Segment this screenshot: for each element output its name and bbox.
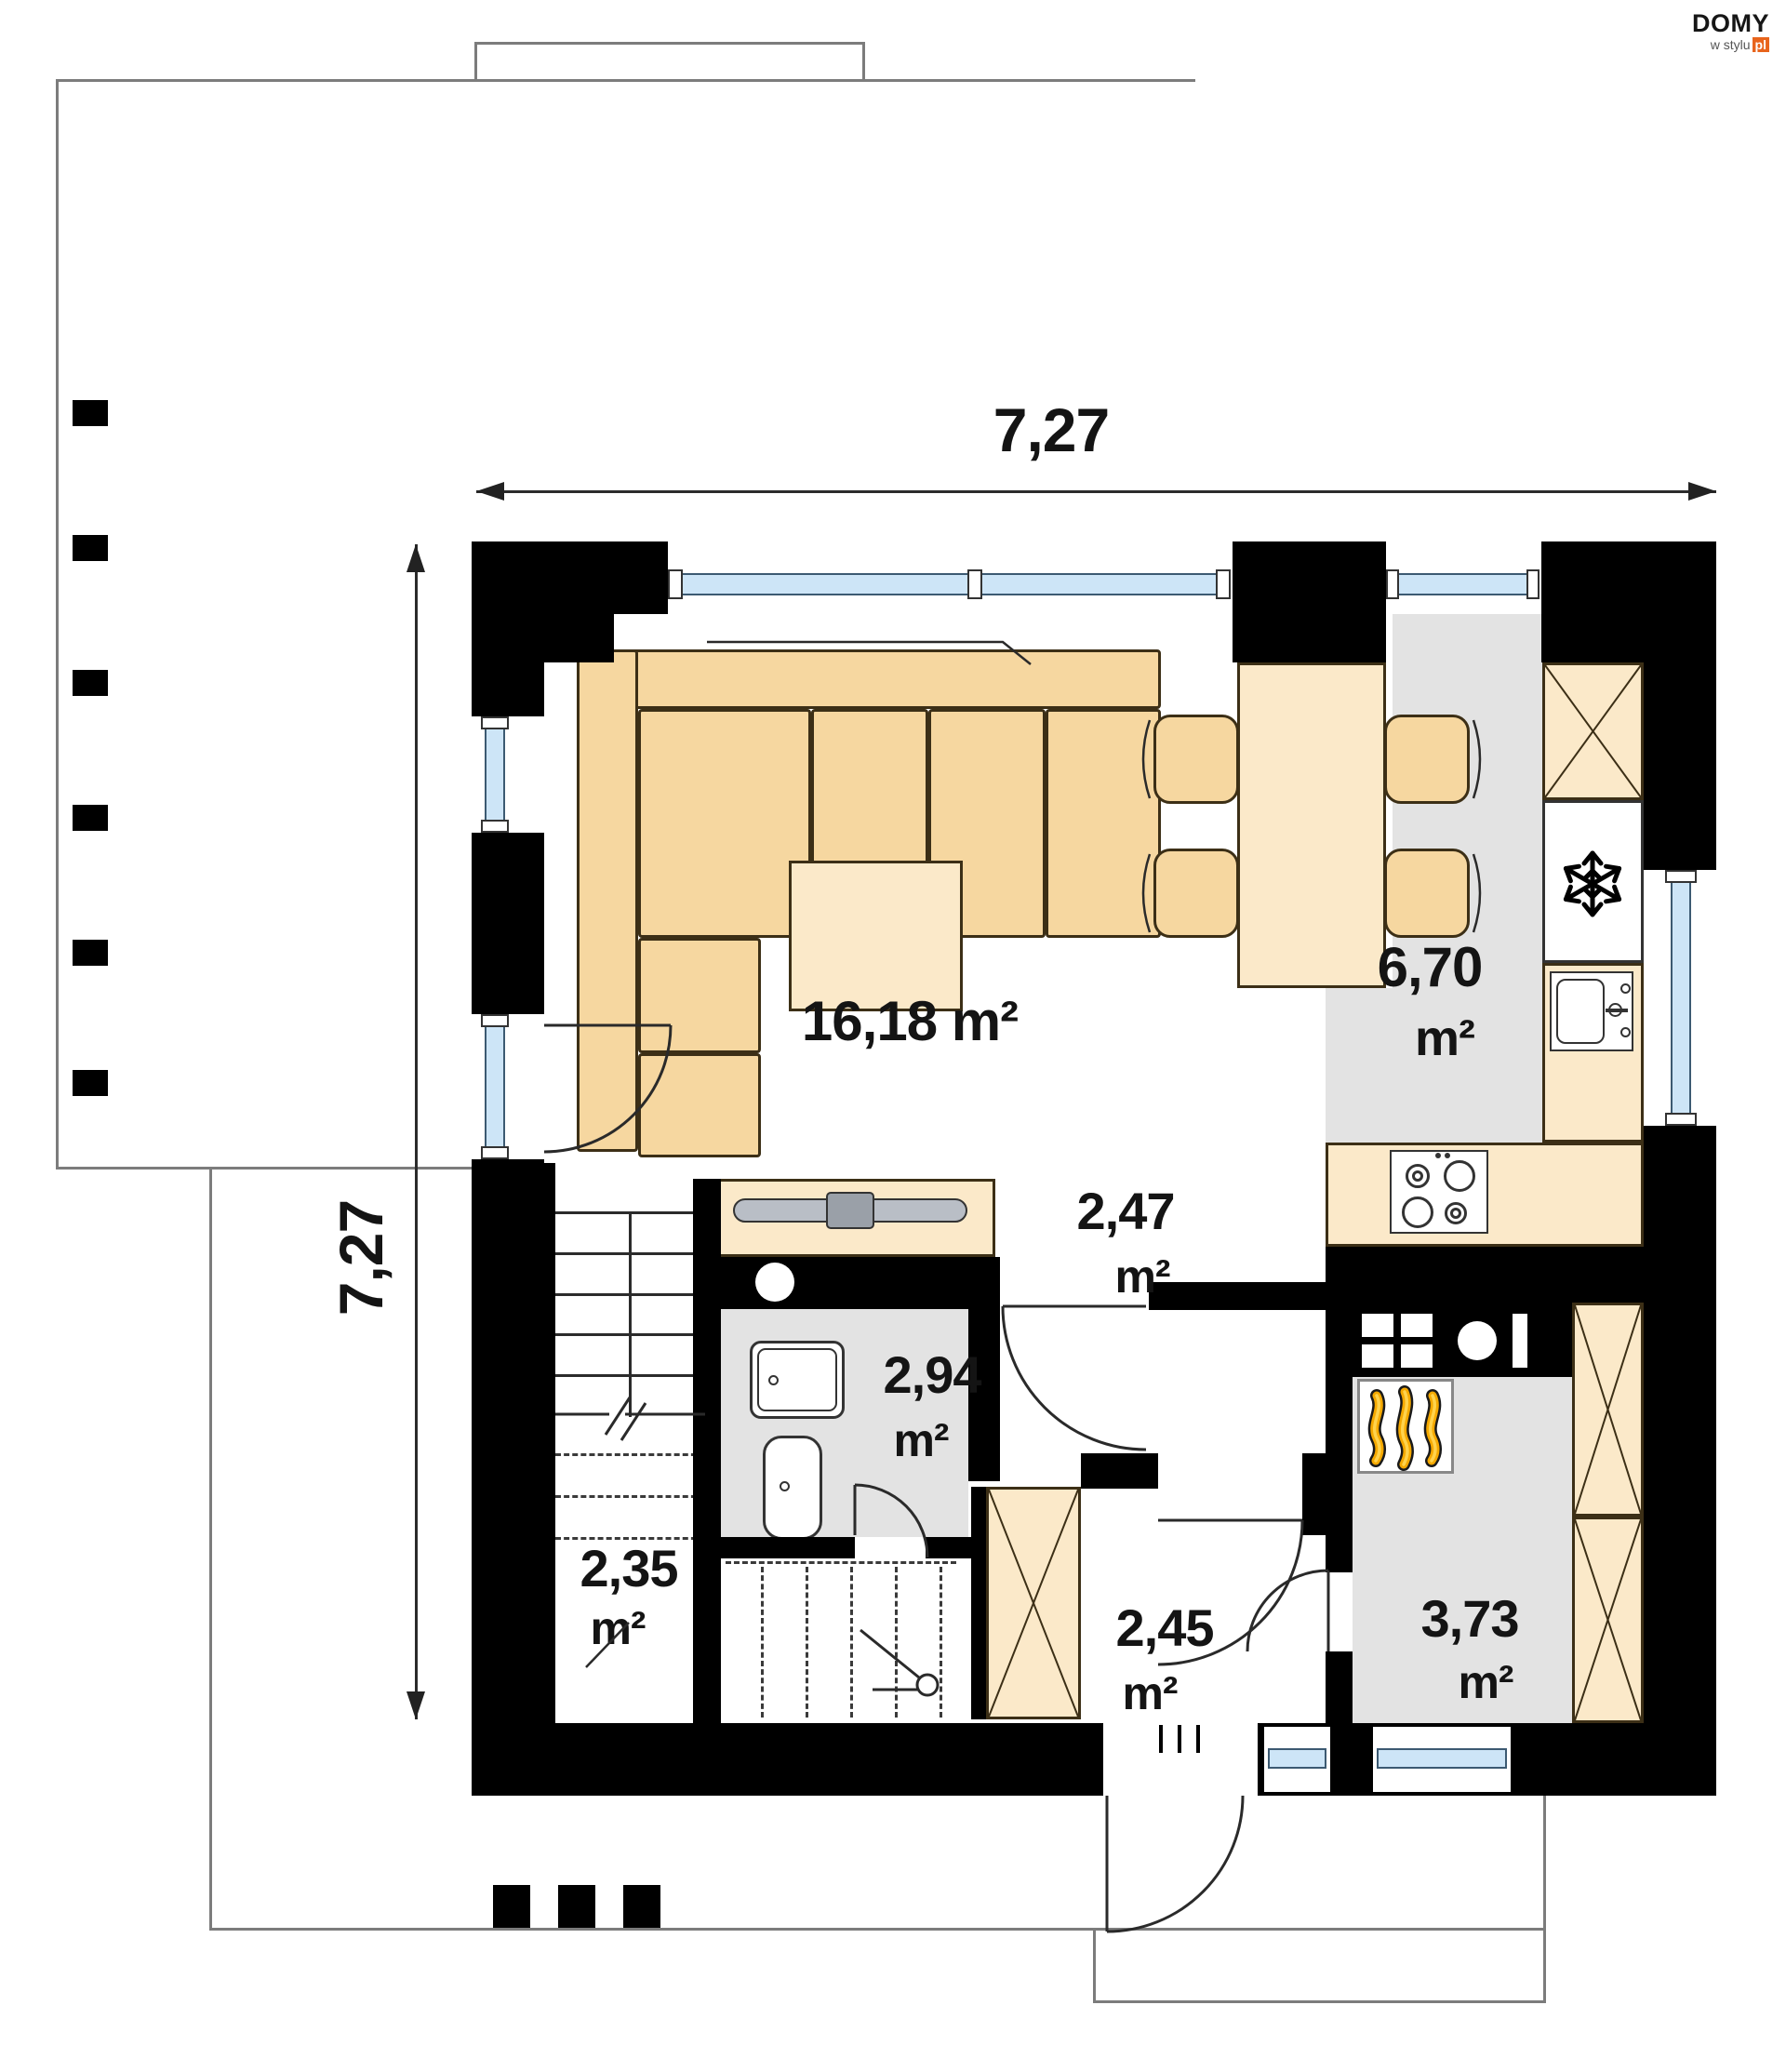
room-unit-vestibule: m² (1122, 1670, 1177, 1717)
window-frame (481, 820, 509, 833)
shower-grid (940, 1567, 942, 1718)
tv-center (826, 1192, 874, 1229)
dimension-line-horizontal (476, 490, 1716, 493)
logo-tld-badge: pl (1753, 37, 1769, 52)
porch-post (558, 1885, 595, 1928)
window-frame (481, 716, 509, 729)
dimension-width-label: 7,27 (993, 399, 1109, 461)
x-cross-icon (1545, 665, 1641, 797)
wall-vestibule-jamb (1081, 1453, 1158, 1489)
washing-machine-icon (1458, 1321, 1497, 1360)
room-label-hall: 2,47 (1077, 1185, 1175, 1237)
stair-center-line (629, 1211, 632, 1417)
shower-edge (726, 1561, 956, 1564)
room-area-unit: m² (952, 990, 1018, 1052)
hall-wardrobe (986, 1487, 1081, 1719)
window-glass (1377, 1748, 1507, 1769)
window-glass (1268, 1748, 1326, 1769)
stair-dashed (555, 1495, 705, 1498)
window-frame (1216, 569, 1231, 599)
shower-grid (761, 1567, 764, 1718)
window-glass (673, 573, 1227, 595)
window-frame (1526, 569, 1539, 599)
coffee-table (789, 861, 963, 1011)
sink-basin (1556, 979, 1605, 1044)
room-unit-boiler: m² (1458, 1659, 1513, 1705)
washbasin-drain (768, 1375, 779, 1385)
dimension-arrow-left-icon (476, 482, 504, 501)
boiler (1357, 1379, 1454, 1474)
cooktop-knob (1445, 1153, 1450, 1158)
door-swing-arc (1003, 1306, 1146, 1450)
cooktop-knob (1435, 1153, 1441, 1158)
floor-plan: 7,27 7,27 (0, 0, 1786, 2072)
sofa-backrest-left (577, 649, 638, 1152)
door-frame (481, 1014, 509, 1027)
sofa-corner-seat (638, 709, 811, 938)
cabinet-back-wall (971, 1487, 986, 1719)
window-frame (1665, 870, 1697, 883)
sink-faucet-arm (1606, 1009, 1628, 1012)
wall-shower (926, 1537, 971, 1558)
dining-chair (1153, 849, 1239, 938)
wall-shower (721, 1537, 855, 1558)
room-unit-stairs: m² (590, 1605, 645, 1651)
logo-sub-text: w stylu (1711, 37, 1751, 52)
window-frame (1665, 1113, 1697, 1126)
dining-chair (1153, 715, 1239, 804)
pergola-post (73, 400, 108, 426)
wall-south (472, 1723, 1716, 1796)
window-frame (1386, 569, 1399, 599)
washer-pane-icon (1401, 1344, 1433, 1368)
stair-dashed (555, 1453, 705, 1456)
wall-east (1644, 541, 1716, 1796)
yard-bottom-outline (209, 1928, 1546, 1931)
shower-grid (850, 1567, 853, 1718)
wall-vestibule-jamb (1302, 1453, 1326, 1535)
fridge (1542, 800, 1644, 963)
sofa-seat (638, 1053, 761, 1157)
wall-boiler-west (1326, 1303, 1353, 1572)
dimension-height-label: 7,27 (330, 1200, 392, 1316)
burner-icon (1402, 1196, 1433, 1228)
room-label-kitchen: 6,70 (1378, 940, 1483, 996)
shower-symbol (860, 1630, 919, 1678)
dining-chair (1384, 849, 1470, 938)
room-unit-hall: m² (1114, 1253, 1169, 1300)
window-frame (668, 569, 683, 599)
roof-outline-top (474, 42, 865, 82)
window-glass (1671, 876, 1691, 1120)
pergola-post (73, 805, 108, 831)
kitchen-tall-cabinet (1542, 662, 1644, 800)
dimension-arrow-right-icon (1688, 482, 1716, 501)
terrace-door-glass (485, 1020, 505, 1154)
dimension-arrow-down-icon (407, 1691, 425, 1719)
door-swing-arc (1107, 1796, 1243, 1932)
pergola-post (73, 1070, 108, 1096)
washer-pane-icon (1362, 1314, 1393, 1337)
window-glass (485, 722, 505, 827)
room-label-boiler: 3,73 (1421, 1593, 1519, 1645)
window-recess (472, 716, 544, 833)
wall-boiler-west (1326, 1651, 1353, 1723)
sink-tap (1620, 1027, 1631, 1037)
logo-brand: DOMY (1692, 11, 1769, 36)
porch-step-bottom (1093, 2000, 1546, 2003)
side-yard-left-edge (209, 1167, 212, 1930)
washer-pane-icon (1362, 1344, 1393, 1368)
sofa-seat (1046, 709, 1161, 938)
shower-drain-icon (917, 1675, 938, 1695)
burner-icon (1412, 1170, 1423, 1182)
shower-grid (806, 1567, 808, 1718)
pergola-post (73, 940, 108, 966)
logo-domy-w-stylu[interactable]: DOMY w stylupl (1692, 11, 1769, 52)
room-unit-bathroom: m² (893, 1417, 948, 1464)
shower-grid (895, 1567, 898, 1718)
terrace-left-edge (56, 79, 59, 1170)
wall-kitchen-boiler (1326, 1247, 1644, 1303)
wall-pier (472, 614, 614, 662)
porch-step-left (1093, 1928, 1096, 2002)
chimney-flue (755, 1263, 794, 1302)
door-frame (481, 1146, 509, 1159)
dimension-arrow-up-icon (407, 544, 425, 572)
toilet (763, 1436, 822, 1540)
dimension-line-vertical (415, 544, 418, 1719)
room-label-vestibule: 2,45 (1116, 1602, 1214, 1654)
room-unit-kitchen: m² (1415, 1013, 1474, 1063)
burner-icon (1444, 1160, 1475, 1192)
sink-tap (1620, 983, 1631, 994)
pergola-post (73, 670, 108, 696)
wall-west-lower (472, 1163, 555, 1723)
wardrobe (1572, 1517, 1644, 1723)
appliance-bar-icon (1513, 1314, 1527, 1368)
porch-right-edge (1543, 1796, 1546, 2002)
room-area-value: 16,18 (802, 990, 937, 1052)
burner-icon (1450, 1208, 1461, 1219)
window-mullion (967, 569, 982, 599)
room-label-stairs: 2,35 (580, 1543, 678, 1595)
porch-post (493, 1885, 530, 1928)
door-swing-arc (1247, 1571, 1328, 1651)
door-threshold-tick (1178, 1725, 1181, 1753)
window-glass (1392, 573, 1536, 595)
dining-chair (1384, 715, 1470, 804)
wall-pier (1233, 541, 1386, 662)
porch-post (623, 1885, 660, 1928)
logo-subtitle: w stylupl (1692, 37, 1769, 52)
wall-bathroom-north (693, 1257, 1000, 1309)
washer-pane-icon (1401, 1314, 1433, 1337)
toilet-drain (780, 1481, 790, 1491)
room-label-living: 16,18 m² (802, 994, 1018, 1049)
door-threshold-tick (1159, 1725, 1163, 1753)
wall-hall-north (1149, 1282, 1326, 1310)
terrace-bottom-edge (56, 1167, 474, 1170)
sofa-seat (638, 938, 761, 1053)
terrace-door-recess (472, 1014, 544, 1159)
door-threshold-tick (1196, 1725, 1200, 1753)
wardrobe (1572, 1303, 1644, 1517)
wall-pier (1541, 541, 1644, 662)
sofa-backrest-top (577, 649, 1161, 709)
eaves-line (56, 79, 1195, 82)
pergola-post (73, 535, 108, 561)
dining-table (1237, 662, 1386, 988)
room-label-bathroom: 2,94 (884, 1349, 981, 1401)
